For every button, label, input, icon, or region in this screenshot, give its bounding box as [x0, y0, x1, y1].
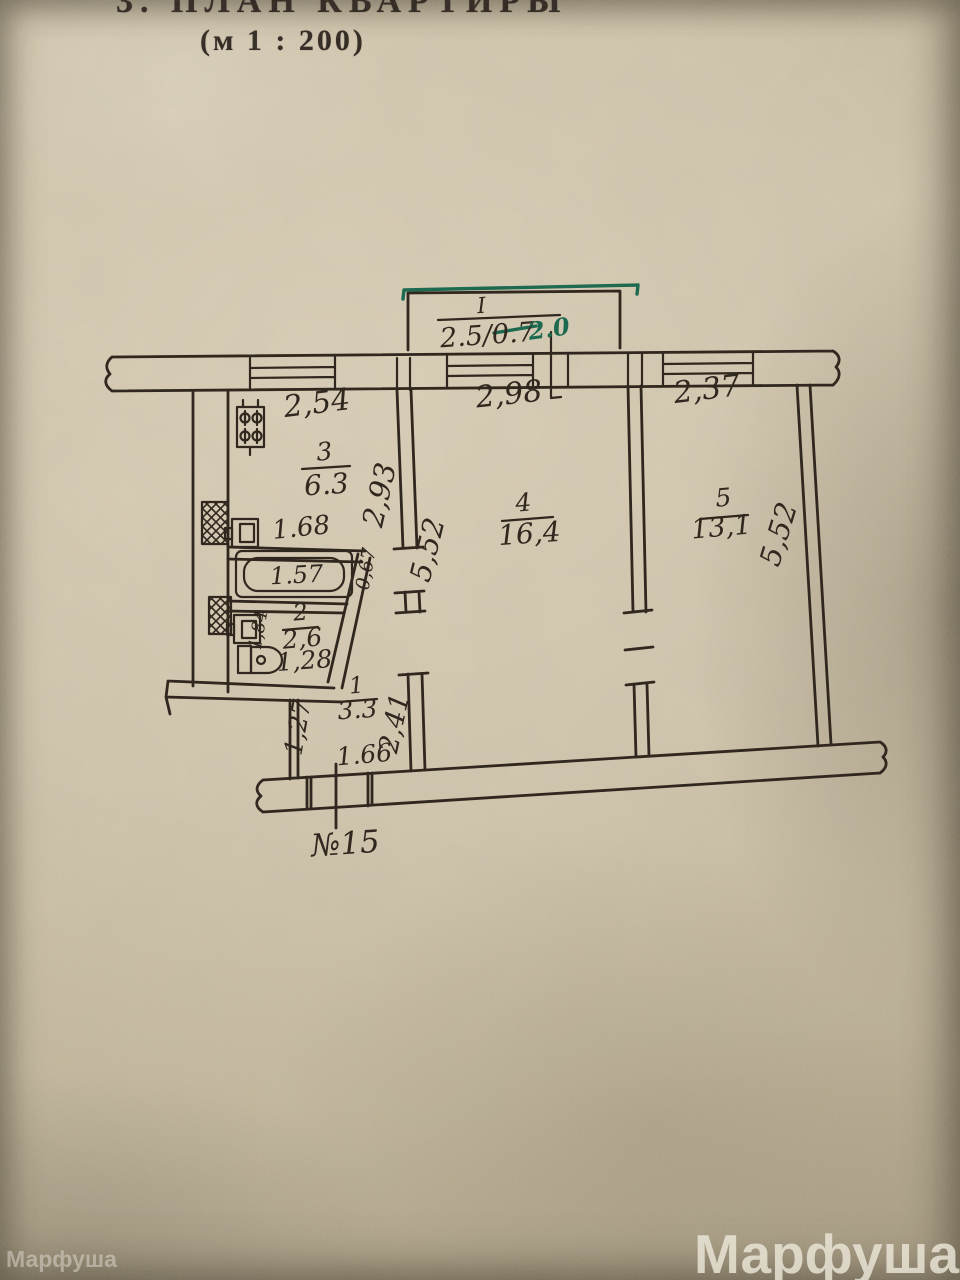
watermark-bottom-right: Марфуша — [694, 1222, 959, 1280]
vent-shaft-icon — [202, 502, 228, 544]
room5-number-label: 5 — [714, 482, 732, 512]
apartment-number-label: №15 — [308, 824, 381, 865]
scanned-floor-plan-photo: 3. ПЛАН КВАРТИРЫ (м 1 : 200) — [0, 0, 960, 1280]
floor-plan-drawing: I 2.5/0.7 2.0 2,54 3 6.3 2,93 2,98 4 16,… — [0, 0, 960, 1280]
kitchen-number-label: 3 — [315, 436, 333, 466]
bath-width-label: 1.68 — [271, 510, 332, 546]
hall-entry-width-label: 1.66 — [335, 738, 393, 772]
kitchen-area-label: 6.3 — [303, 467, 350, 503]
vent-shaft-icon-2 — [209, 597, 231, 634]
toilet-number-label: 2 — [291, 599, 309, 626]
toilet-pan-label: 1,28 — [276, 644, 334, 677]
bathtub-size-label: 1.57 — [269, 560, 325, 591]
watermark-bottom-left: Марфуша — [6, 1246, 117, 1273]
room4-number-label: 4 — [513, 487, 532, 517]
room4-width-label: 2,98 — [473, 374, 544, 416]
paper-texture-fine — [0, 0, 960, 1280]
balcony-green-note: 2.0 — [525, 311, 572, 346]
hall-area-label: 3.3 — [337, 694, 379, 726]
room4-area-label: 16,4 — [497, 515, 561, 552]
room5-area-label: 13,1 — [690, 509, 753, 545]
